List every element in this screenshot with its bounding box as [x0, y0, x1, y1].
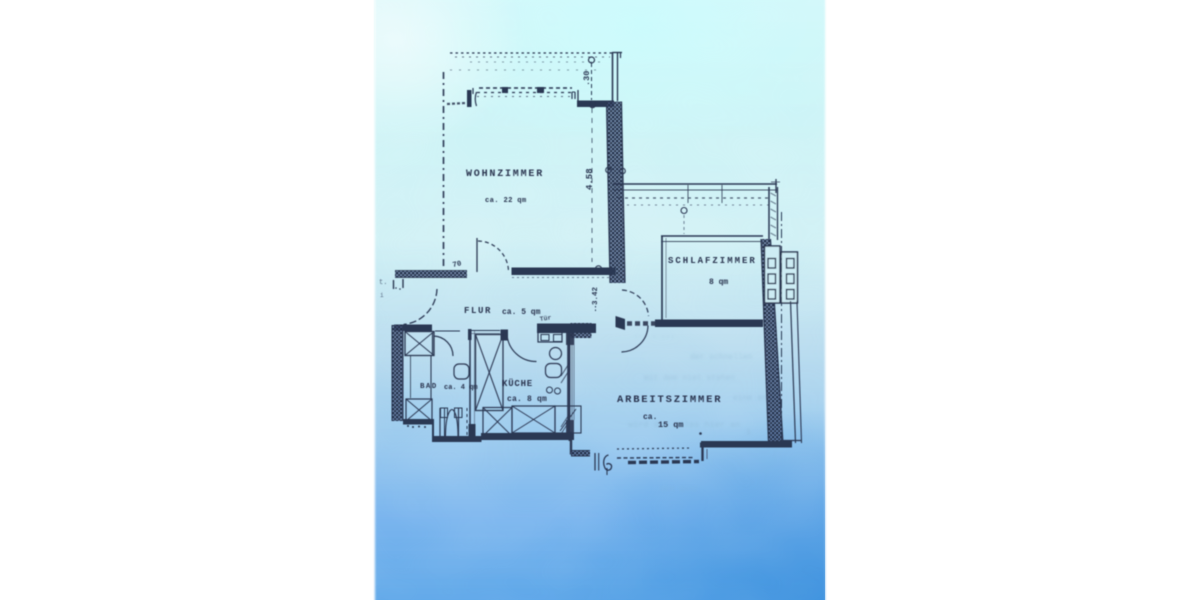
svg-text:... . ...: ... . ... [634, 332, 675, 340]
svg-text:4.58: 4.58 [585, 168, 595, 190]
svg-text:ca. 4 qm: ca. 4 qm [444, 384, 478, 392]
svg-text:ca. 8 qm: ca. 8 qm [507, 395, 547, 404]
svg-text:8 qm: 8 qm [709, 278, 728, 287]
svg-text:t.: t. [379, 279, 387, 287]
svg-text:SCHLAFZIMMER: SCHLAFZIMMER [668, 256, 757, 266]
svg-text:der schnellen: der schnellen [690, 353, 753, 362]
svg-text:1: 1 [746, 428, 751, 437]
svg-text:FLUR: FLUR [464, 306, 492, 316]
svg-text:3.42: 3.42 [592, 286, 600, 305]
svg-text:eine and: eine and [733, 394, 772, 403]
svg-text:WOHNZIMMER: WOHNZIMMER [466, 169, 544, 180]
svg-text:ca.: ca. [643, 413, 657, 422]
svg-text:ca. 22 qm: ca. 22 qm [485, 197, 527, 205]
svg-text:i: i [380, 292, 384, 299]
svg-text:BAD: BAD [420, 383, 438, 391]
svg-text:KÜCHE: KÜCHE [502, 378, 533, 389]
svg-text:ca. 5 qm: ca. 5 qm [502, 308, 541, 317]
svg-text:mit dem niet stehen: mit dem niet stehen [644, 374, 735, 383]
svg-text:15 qm: 15 qm [658, 420, 684, 430]
svg-text:.30: .30 [582, 71, 592, 86]
svg-text:dem ganz: dem ganz [660, 485, 699, 494]
svg-text:ARBEITSZIMMER: ARBEITSZIMMER [617, 394, 722, 406]
